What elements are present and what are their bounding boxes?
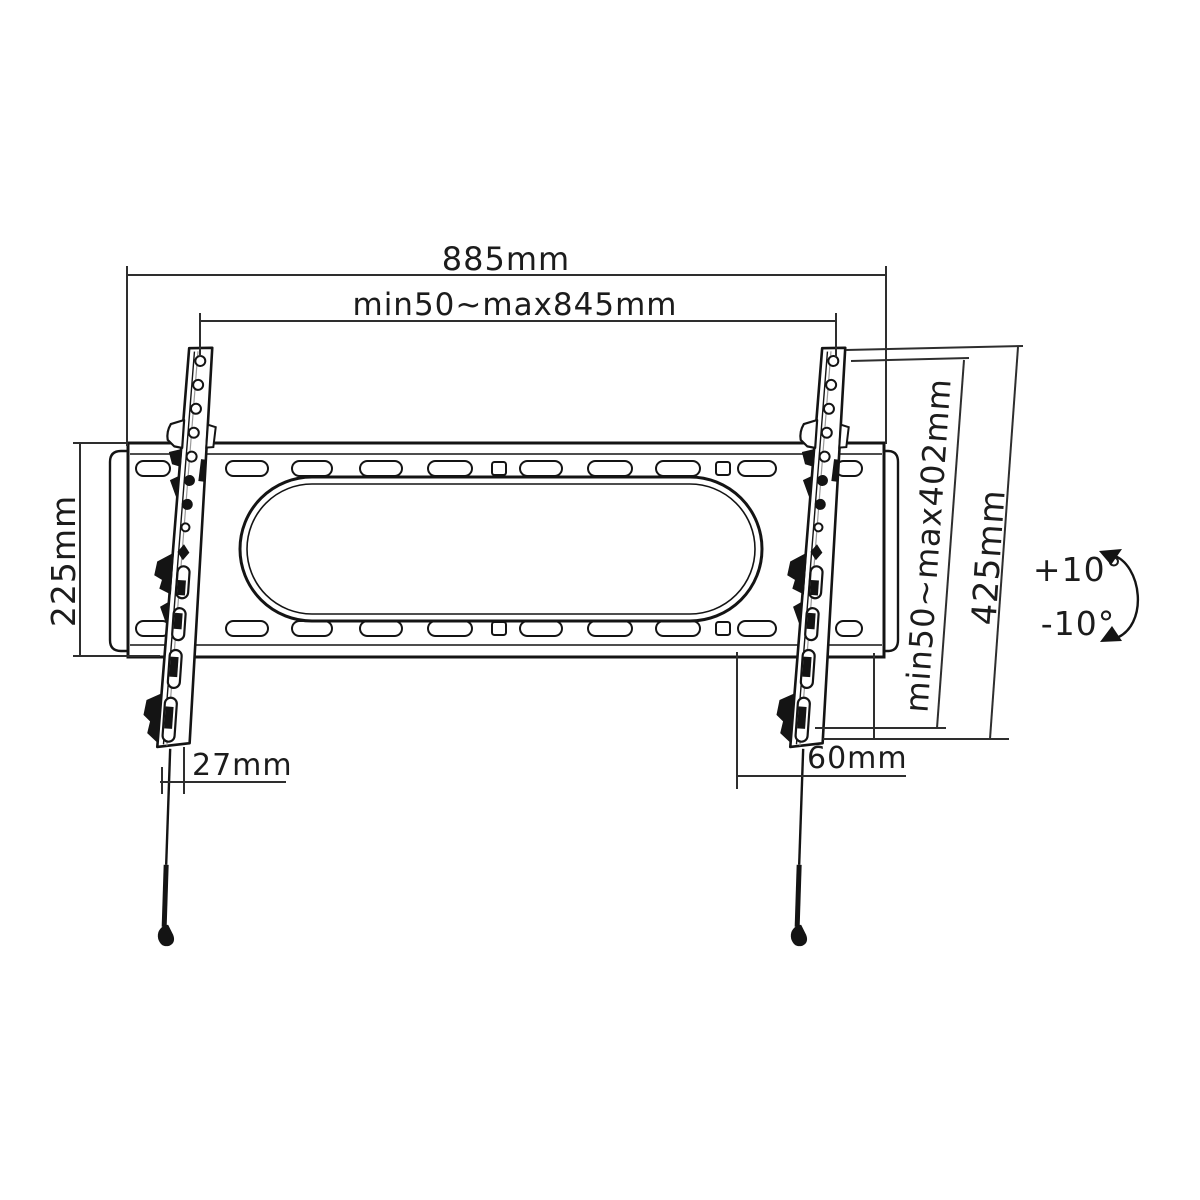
tv-mount-dimension-drawing: 885mm min50~max845mm 225mm min50~max402m… xyxy=(0,0,1200,1200)
tilt-indicator: +10° -10° xyxy=(1033,549,1138,643)
dim-label-rail-length: 425mm xyxy=(964,488,1013,627)
mounting-slot-row-bottom xyxy=(136,621,862,636)
mounting-slot-row-top xyxy=(136,461,862,476)
ext-line xyxy=(851,358,969,361)
dim-label-offset-left: 27mm xyxy=(192,748,293,783)
diagram-canvas: 885mm min50~max845mm 225mm min50~max402m… xyxy=(0,0,1200,1200)
dim-label-width-total: 885mm xyxy=(442,240,570,278)
ext-line xyxy=(846,346,1023,350)
dim-label-width-range: min50~max845mm xyxy=(353,287,678,323)
dim-label-offset-right: 60mm xyxy=(807,741,908,776)
dim-label-plate-height: 225mm xyxy=(44,495,83,627)
wall-plate xyxy=(110,443,898,657)
